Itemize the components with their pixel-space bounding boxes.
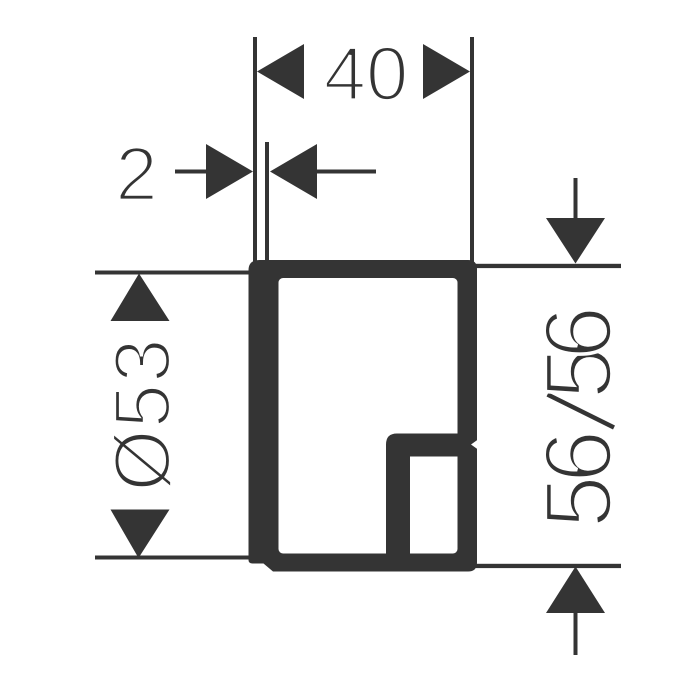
svg-text:56: 56 <box>525 430 632 529</box>
svg-text:2: 2 <box>115 132 157 217</box>
svg-text:56: 56 <box>525 306 632 400</box>
svg-text:Ø53: Ø53 <box>98 337 187 491</box>
svg-text:40: 40 <box>324 32 409 117</box>
